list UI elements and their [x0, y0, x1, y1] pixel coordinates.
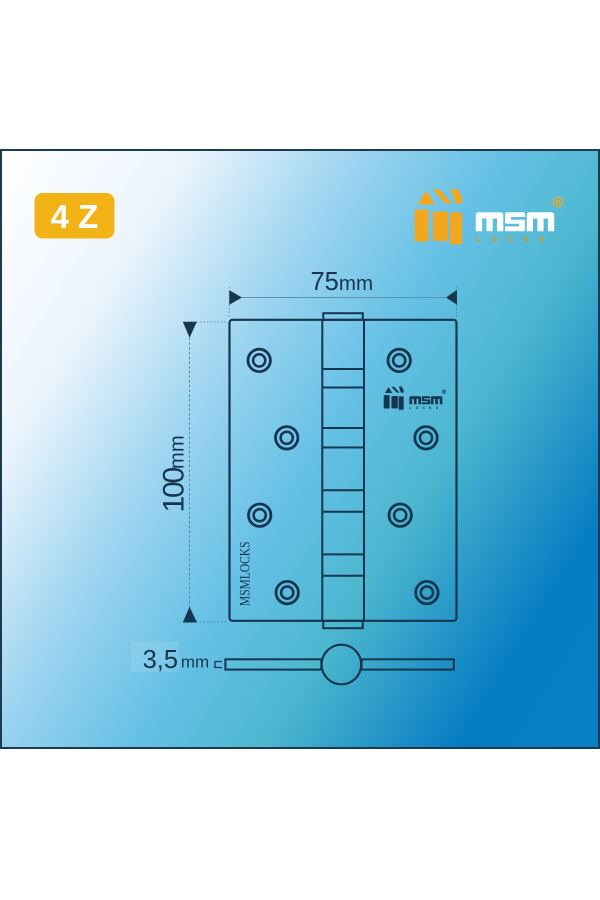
- svg-text:MSMLOCKS: MSMLOCKS: [237, 542, 253, 607]
- svg-text:mm: mm: [181, 653, 209, 672]
- svg-text:4 Z: 4 Z: [51, 198, 99, 235]
- svg-text:75mm: 75mm: [311, 268, 374, 296]
- svg-text:3,5: 3,5: [143, 646, 178, 674]
